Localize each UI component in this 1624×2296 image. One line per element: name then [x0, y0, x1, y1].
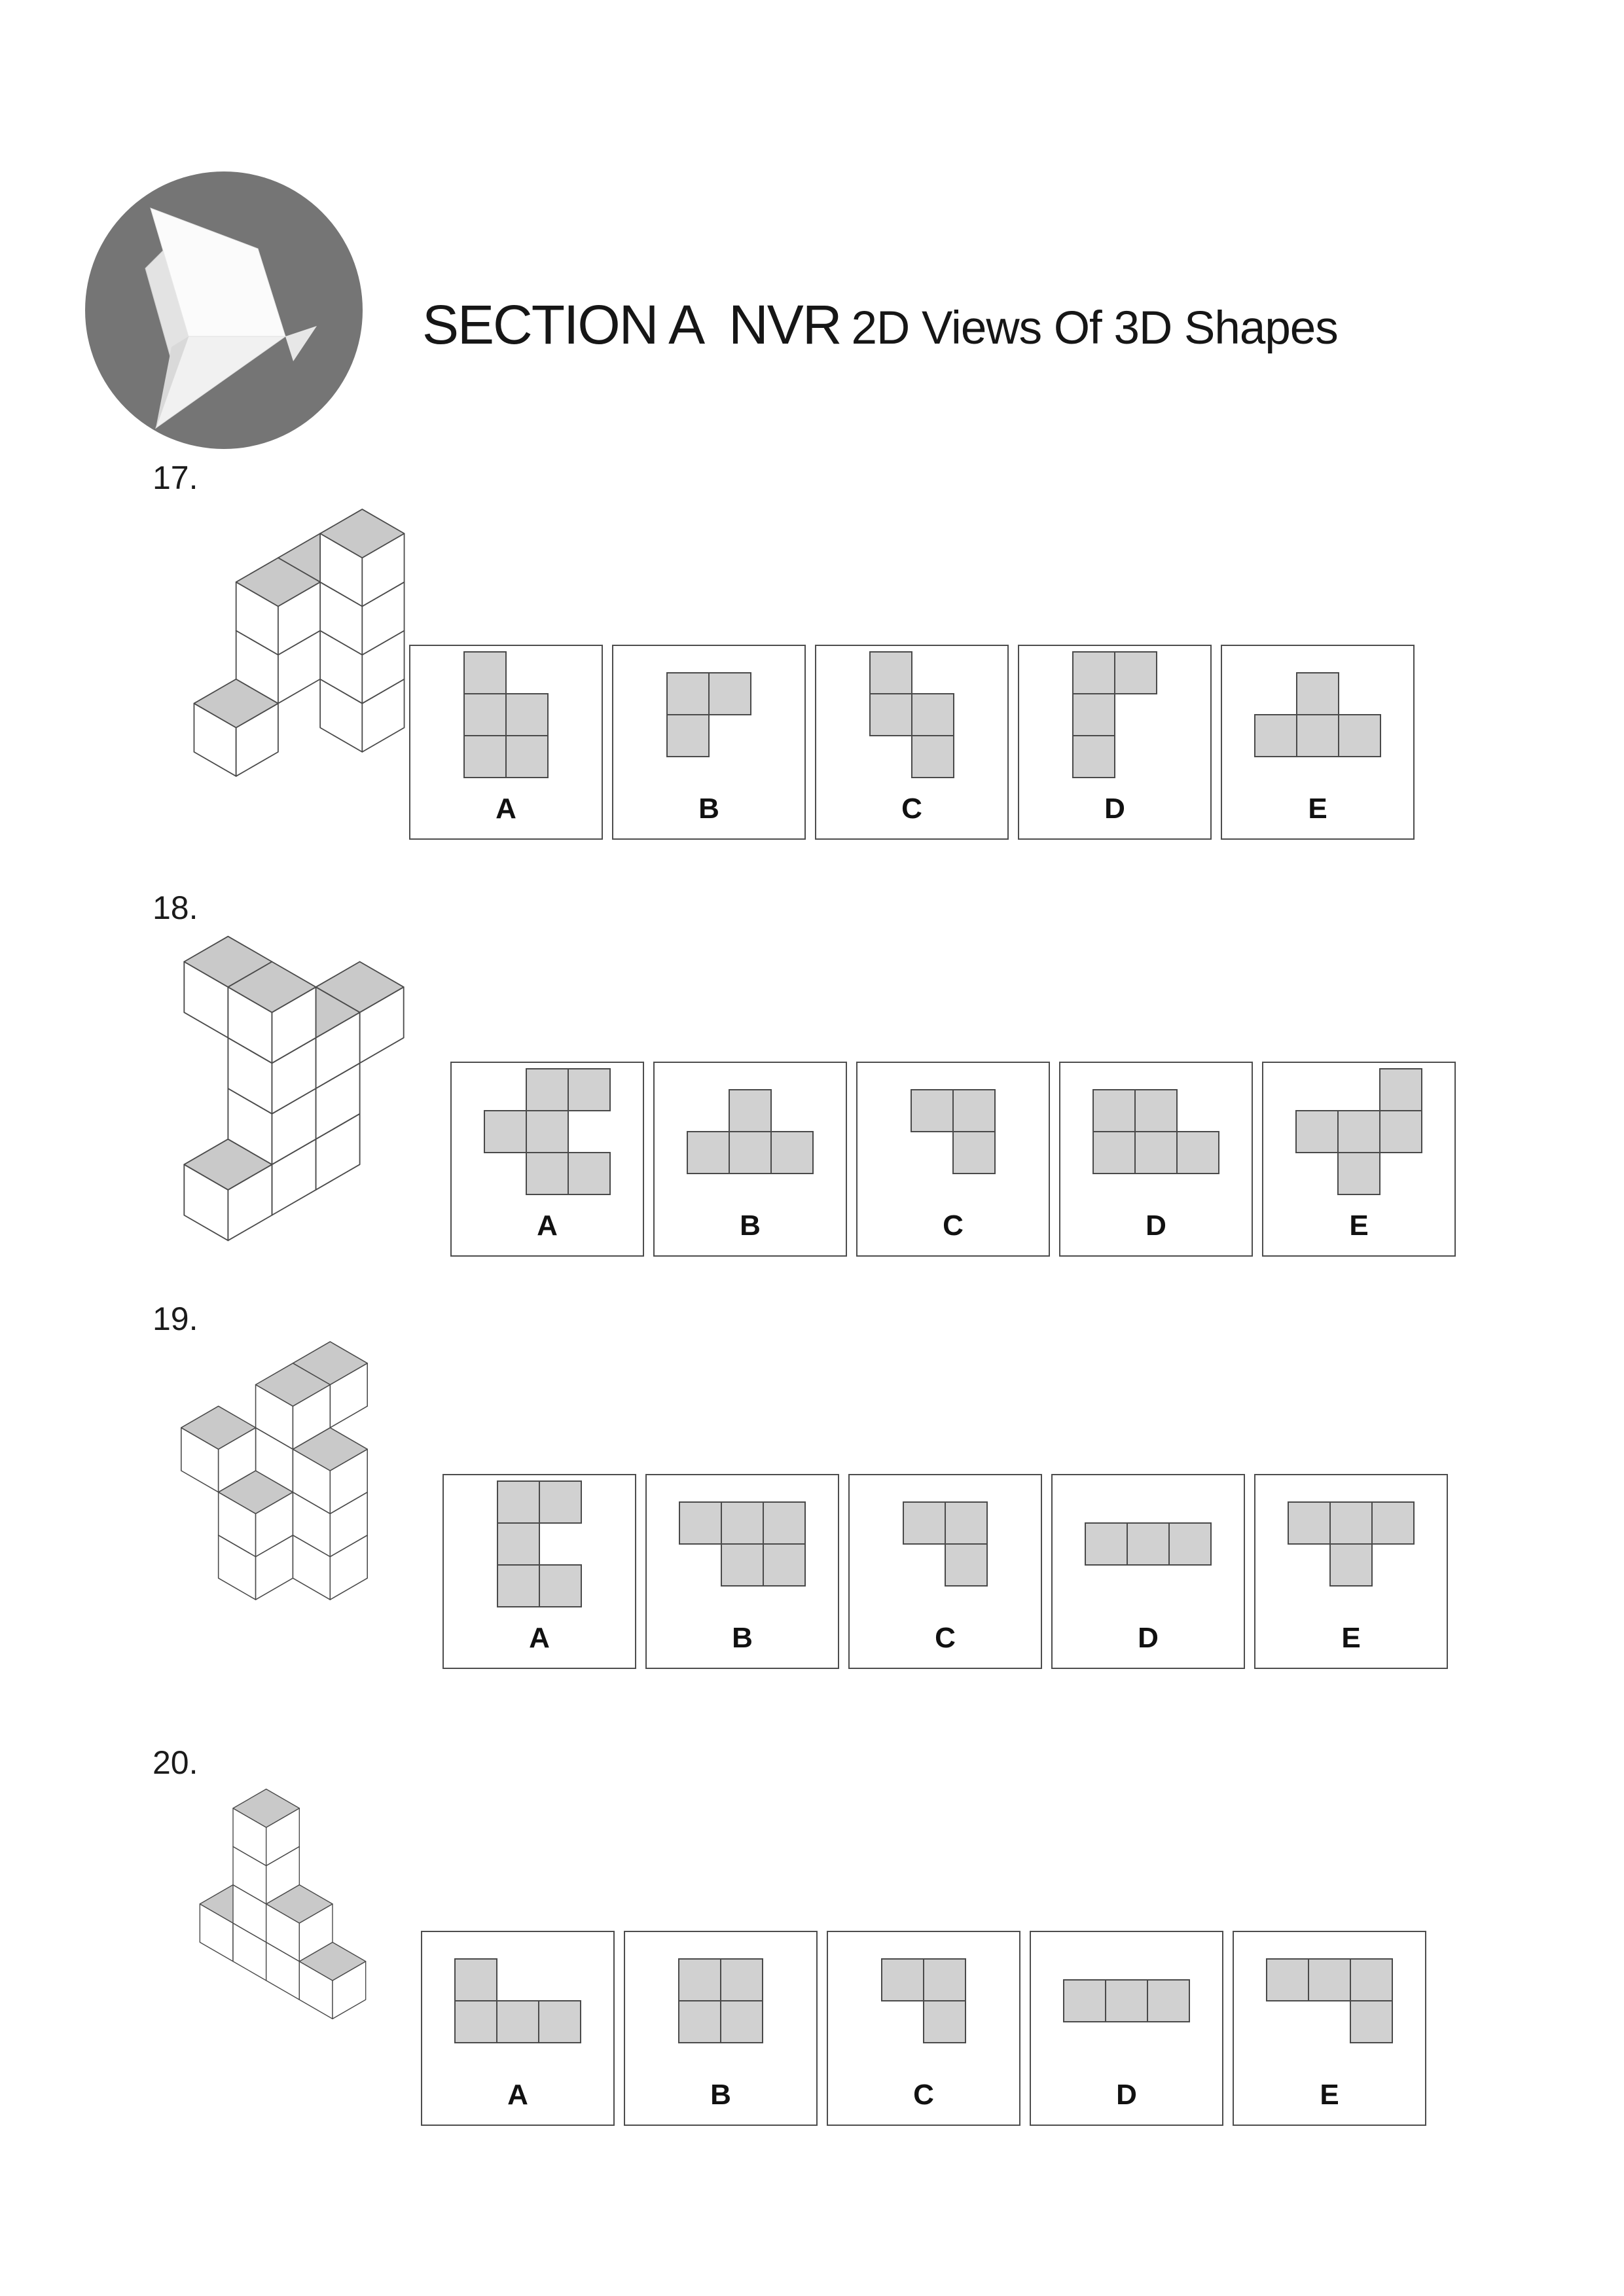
shape-square	[729, 1089, 772, 1132]
shape-square	[1127, 1522, 1170, 1566]
logo	[85, 171, 363, 449]
cube-figure	[191, 505, 407, 780]
shape-square	[1371, 1501, 1415, 1545]
shape-square	[923, 2000, 966, 2043]
isometric-cubes-svg	[181, 933, 407, 1244]
shape-square	[1308, 1958, 1351, 2001]
option-box-B[interactable]: B	[624, 1931, 818, 2126]
option-shape	[1060, 1063, 1252, 1200]
shape-square	[497, 1480, 540, 1524]
option-shape	[452, 1063, 643, 1200]
shape-square	[770, 1131, 814, 1174]
shape-square	[1337, 1110, 1380, 1153]
question-number: 19.	[153, 1302, 198, 1335]
option-box-C[interactable]: C	[848, 1474, 1042, 1669]
origami-bird-icon	[85, 171, 363, 449]
shape-square	[1134, 1131, 1178, 1174]
shape-square	[1337, 1152, 1380, 1195]
shape-square	[869, 693, 912, 736]
shape-square	[763, 1543, 806, 1587]
shape-square	[1072, 651, 1115, 694]
option-label: E	[1255, 1622, 1447, 1655]
cube-figure	[181, 933, 407, 1244]
shape-square	[1379, 1110, 1422, 1153]
shape-square	[911, 1089, 954, 1132]
shape-square	[526, 1068, 569, 1111]
option-label: A	[452, 1210, 643, 1242]
option-shape	[1263, 1063, 1454, 1200]
option-shape	[1053, 1475, 1244, 1613]
shape-square	[1296, 672, 1339, 715]
option-box-D[interactable]: D	[1030, 1931, 1223, 2126]
question-number: 20.	[153, 1746, 198, 1779]
shape-square	[666, 714, 710, 757]
shape-square	[497, 1564, 540, 1607]
shape-square	[1295, 1110, 1339, 1153]
shape-square	[454, 1958, 497, 2001]
option-shape	[1031, 1932, 1222, 2070]
shape-square	[721, 1543, 764, 1587]
option-label: D	[1053, 1622, 1244, 1655]
option-label: D	[1031, 2079, 1222, 2111]
option-shape	[444, 1475, 635, 1613]
shape-square	[763, 1501, 806, 1545]
shape-square	[678, 2000, 721, 2043]
isometric-cubes-svg	[183, 1787, 382, 2021]
shape-square	[463, 651, 507, 694]
options-row: ABCDE	[421, 1931, 1426, 2126]
shape-square	[1379, 1068, 1422, 1111]
shape-square	[539, 1564, 582, 1607]
shape-square	[721, 1501, 764, 1545]
shape-square	[1329, 1501, 1373, 1545]
shape-square	[463, 693, 507, 736]
option-box-A[interactable]: A	[442, 1474, 636, 1669]
option-box-A[interactable]: A	[409, 645, 603, 840]
option-box-D[interactable]: D	[1018, 645, 1212, 840]
shape-square	[463, 735, 507, 778]
shape-square	[1134, 1089, 1178, 1132]
option-label: D	[1019, 793, 1210, 825]
shape-square	[1072, 735, 1115, 778]
shape-square	[496, 2000, 539, 2043]
section-title-sub: 2D Views Of 3D Shapes	[852, 302, 1338, 354]
shape-square	[945, 1501, 988, 1545]
shape-square	[666, 672, 710, 715]
option-box-D[interactable]: D	[1051, 1474, 1245, 1669]
shape-square	[1338, 714, 1381, 757]
shape-square	[454, 2000, 497, 2043]
option-shape	[1234, 1932, 1425, 2070]
option-shape	[850, 1475, 1041, 1613]
option-label: E	[1263, 1210, 1454, 1242]
shape-square	[1350, 1958, 1393, 2001]
option-box-D[interactable]: D	[1059, 1062, 1253, 1257]
option-shape	[1222, 646, 1413, 783]
shape-square	[881, 1958, 924, 2001]
shape-square	[538, 2000, 581, 2043]
shape-square	[539, 1480, 582, 1524]
shape-square	[1254, 714, 1297, 757]
shape-square	[679, 1501, 722, 1545]
option-box-B[interactable]: B	[645, 1474, 839, 1669]
option-shape	[647, 1475, 838, 1613]
worksheet-page: SECTION A NVR2D Views Of 3D Shapes 17. A…	[0, 0, 1624, 2296]
shape-square	[952, 1131, 996, 1174]
shape-square	[1114, 651, 1157, 694]
options-row: ABCDE	[409, 645, 1415, 840]
options-row: ABCDE	[442, 1474, 1448, 1669]
option-box-C[interactable]: C	[827, 1931, 1020, 2126]
question-number: 17.	[153, 461, 198, 494]
option-shape	[857, 1063, 1049, 1200]
shape-square	[1063, 1979, 1106, 2022]
shape-square	[729, 1131, 772, 1174]
cube-figure	[183, 1787, 382, 2021]
option-shape	[1255, 1475, 1447, 1613]
isometric-cubes-svg	[191, 505, 407, 780]
isometric-cubes-svg	[174, 1339, 374, 1602]
option-box-B[interactable]: B	[653, 1062, 847, 1257]
option-label: B	[647, 1622, 838, 1655]
shape-square	[484, 1110, 527, 1153]
option-label: E	[1222, 793, 1413, 825]
section-title: SECTION A NVR2D Views Of 3D Shapes	[422, 293, 1338, 357]
option-label: C	[816, 793, 1007, 825]
option-label: D	[1060, 1210, 1252, 1242]
option-label: C	[850, 1622, 1041, 1655]
shape-square	[1092, 1089, 1136, 1132]
shape-square	[1288, 1501, 1331, 1545]
shape-square	[1296, 714, 1339, 757]
section-title-main: SECTION A NVR	[422, 294, 841, 355]
option-box-E[interactable]: E	[1254, 1474, 1448, 1669]
option-shape	[828, 1932, 1019, 2070]
options-row: ABCDE	[450, 1062, 1456, 1257]
option-box-E[interactable]: E	[1221, 645, 1415, 840]
shape-square	[720, 1958, 763, 2001]
shape-square	[1072, 693, 1115, 736]
option-shape	[613, 646, 804, 783]
option-shape	[1019, 646, 1210, 783]
shape-square	[1105, 1979, 1148, 2022]
shape-square	[497, 1522, 540, 1566]
option-label: B	[625, 2079, 816, 2111]
option-label: A	[410, 793, 602, 825]
shape-square	[945, 1543, 988, 1587]
option-label: B	[613, 793, 804, 825]
shape-square	[903, 1501, 946, 1545]
shape-square	[952, 1089, 996, 1132]
shape-square	[1168, 1522, 1212, 1566]
option-shape	[422, 1932, 613, 2070]
option-shape	[816, 646, 1007, 783]
option-shape	[655, 1063, 846, 1200]
shape-square	[568, 1152, 611, 1195]
option-box-C[interactable]: C	[856, 1062, 1050, 1257]
shape-square	[505, 735, 549, 778]
shape-square	[720, 2000, 763, 2043]
shape-square	[1092, 1131, 1136, 1174]
shape-square	[708, 672, 751, 715]
option-label: A	[422, 2079, 613, 2111]
shape-square	[1350, 2000, 1393, 2043]
shape-square	[1329, 1543, 1373, 1587]
cube-figure	[174, 1339, 374, 1602]
option-box-E[interactable]: E	[1262, 1062, 1456, 1257]
shape-square	[678, 1958, 721, 2001]
shape-square	[568, 1068, 611, 1111]
shape-square	[505, 693, 549, 736]
shape-square	[911, 693, 954, 736]
shape-square	[1085, 1522, 1128, 1566]
shape-square	[526, 1152, 569, 1195]
option-box-C[interactable]: C	[815, 645, 1009, 840]
option-box-B[interactable]: B	[612, 645, 806, 840]
question-number: 18.	[153, 891, 198, 924]
shape-square	[687, 1131, 730, 1174]
option-box-A[interactable]: A	[421, 1931, 615, 2126]
shape-square	[526, 1110, 569, 1153]
option-shape	[625, 1932, 816, 2070]
shape-square	[1266, 1958, 1309, 2001]
option-box-E[interactable]: E	[1233, 1931, 1426, 2126]
option-label: A	[444, 1622, 635, 1655]
shape-square	[1147, 1979, 1190, 2022]
option-box-A[interactable]: A	[450, 1062, 644, 1257]
option-label: B	[655, 1210, 846, 1242]
shape-square	[911, 735, 954, 778]
shape-square	[923, 1958, 966, 2001]
option-label: C	[857, 1210, 1049, 1242]
shape-square	[1176, 1131, 1219, 1174]
option-label: C	[828, 2079, 1019, 2111]
option-shape	[410, 646, 602, 783]
shape-square	[869, 651, 912, 694]
option-label: E	[1234, 2079, 1425, 2111]
